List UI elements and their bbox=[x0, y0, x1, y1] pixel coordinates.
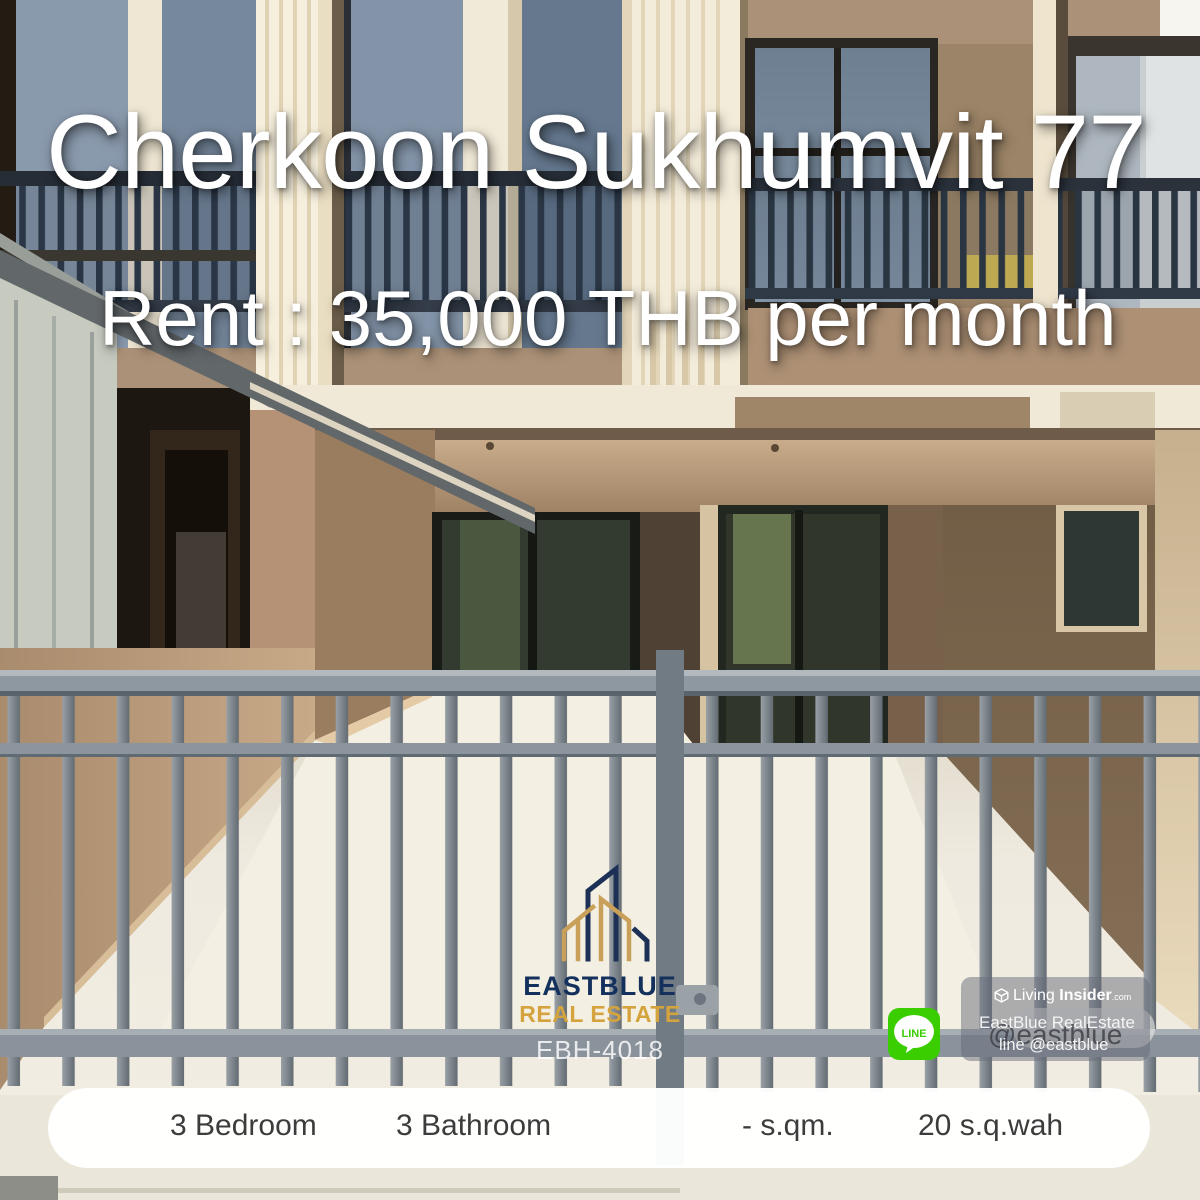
svg-text:LINE: LINE bbox=[901, 1028, 926, 1040]
